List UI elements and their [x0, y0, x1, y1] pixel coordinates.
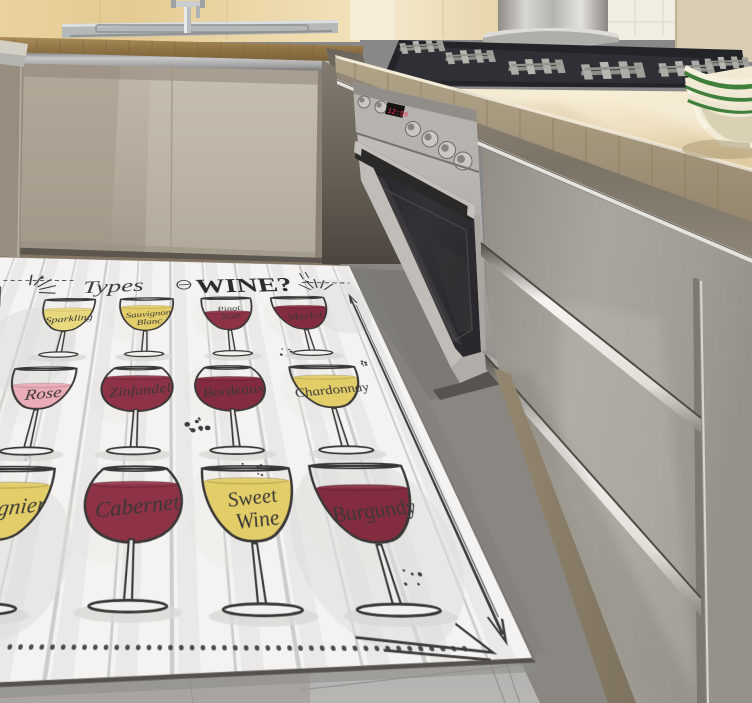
svg-text:Wine: Wine	[234, 507, 284, 535]
svg-text:WINE?: WINE?	[195, 274, 296, 298]
svg-text:Types: Types	[82, 276, 144, 298]
svg-text:Noir: Noir	[219, 312, 243, 322]
